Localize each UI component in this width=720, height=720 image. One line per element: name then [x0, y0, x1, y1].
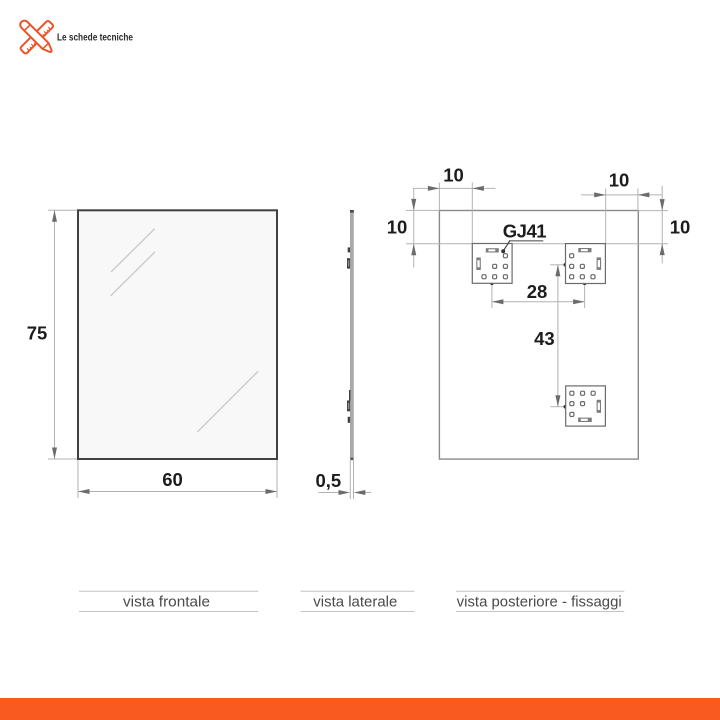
svg-text:0,5: 0,5	[315, 470, 341, 491]
svg-text:GJ41: GJ41	[503, 221, 546, 242]
svg-text:28: 28	[527, 281, 548, 302]
svg-text:10: 10	[670, 217, 691, 238]
svg-text:60: 60	[162, 469, 183, 490]
svg-text:vista frontale: vista frontale	[123, 595, 210, 611]
svg-text:43: 43	[534, 328, 555, 349]
svg-text:vista laterale: vista laterale	[313, 595, 397, 611]
svg-text:10: 10	[387, 217, 408, 238]
svg-text:Le schede tecniche: Le schede tecniche	[57, 33, 133, 44]
svg-text:75: 75	[27, 323, 48, 344]
svg-text:10: 10	[609, 170, 630, 191]
svg-text:vista posteriore - fissaggi: vista posteriore - fissaggi	[457, 595, 622, 611]
svg-text:10: 10	[443, 165, 464, 186]
